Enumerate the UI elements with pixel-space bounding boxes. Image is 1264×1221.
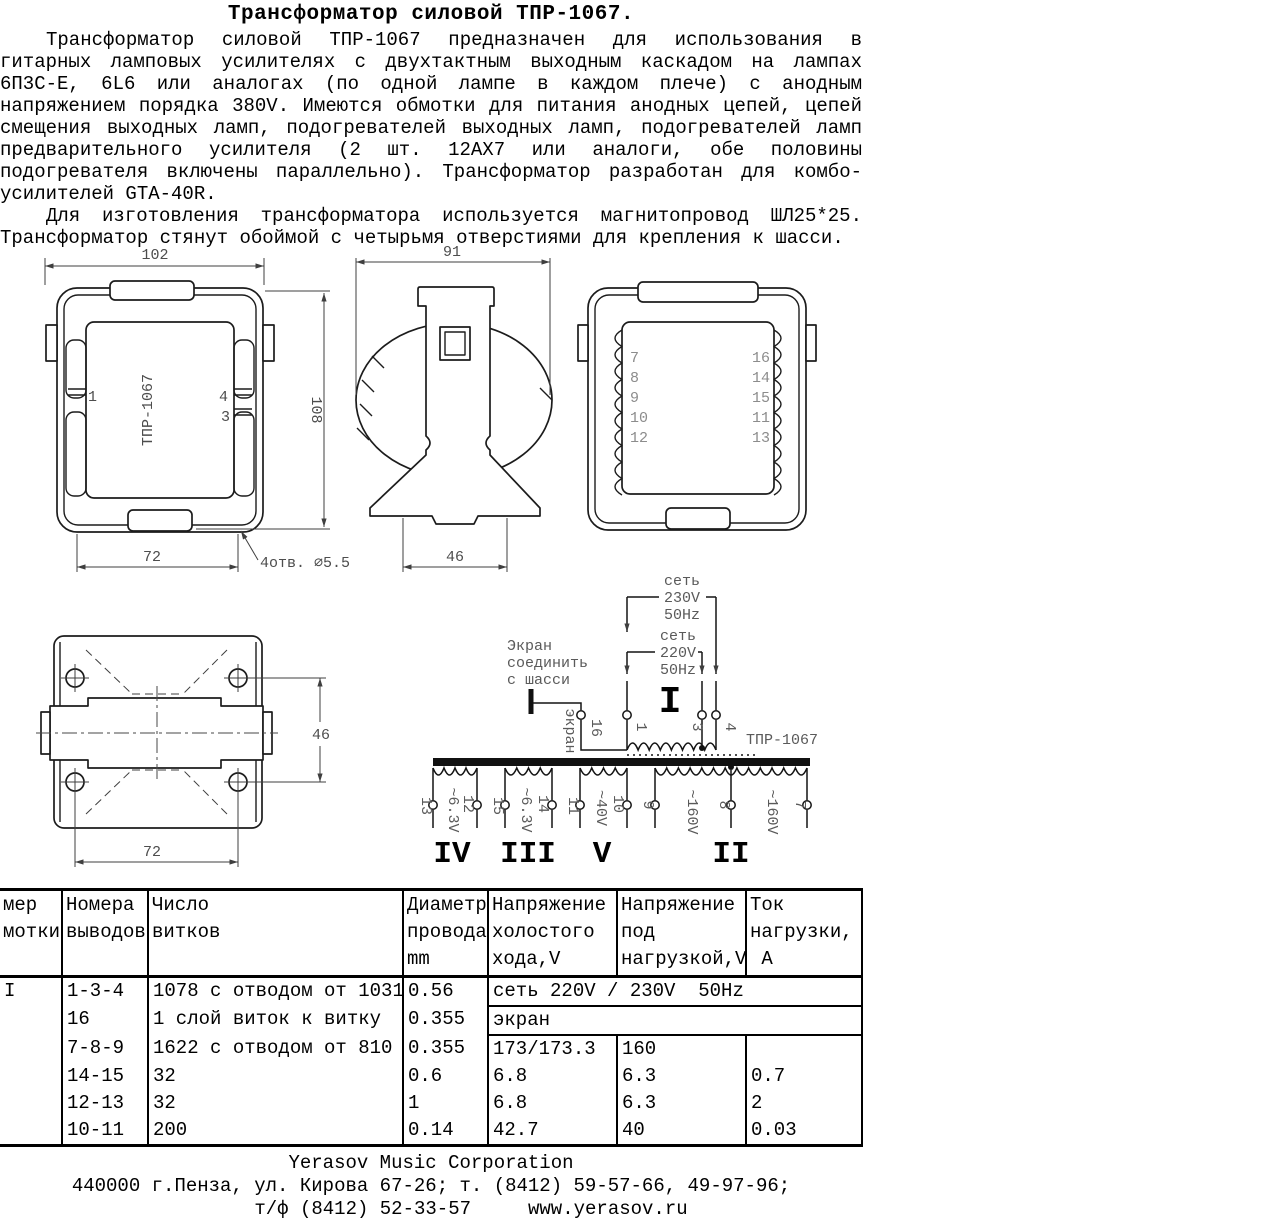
cell-load: 6.3 (617, 1063, 746, 1090)
th-pin-numbers: Номера выводов (62, 890, 148, 977)
svg-text:9: 9 (639, 800, 656, 809)
cell-screen-span: экран (488, 1006, 862, 1035)
th-winding-number: мер мотки (0, 890, 62, 977)
front-pin-1-label: 1 (88, 389, 97, 406)
rear-coil-window (622, 322, 774, 494)
cell-diameter: 0.56 (403, 977, 488, 1007)
screen-note: Экран (507, 638, 552, 655)
winding-II-numeral: II (712, 837, 749, 872)
cell-diameter: 0.6 (403, 1063, 488, 1090)
cell-pins: 12-13 (62, 1090, 148, 1117)
pin-1-terminal (623, 711, 631, 719)
rear-left-pin-strip (615, 330, 622, 495)
table-row: 10-11 200 0.14 42.7 40 0.03 (0, 1117, 862, 1146)
cell-pins: 14-15 (62, 1063, 148, 1090)
screen-wire-label: экран (561, 708, 578, 753)
pin-1-label: 1 (632, 722, 649, 731)
svg-text:7: 7 (791, 800, 808, 809)
table-row: I 1-3-4 1078 с отводом от 1031 0.56 сеть… (0, 977, 862, 1007)
cell-pins: 7-8-9 (62, 1035, 148, 1063)
top-dim-height: 46 (312, 727, 330, 744)
rear-right-pin-strip (774, 330, 781, 495)
table-row: 12-13 32 1 6.8 6.3 2 (0, 1090, 862, 1117)
top-view-drawing: 46 72 (36, 636, 330, 867)
svg-text:10: 10 (609, 795, 626, 813)
pin-3-label: 3 (688, 722, 705, 731)
cell-noload: 6.8 (488, 1090, 617, 1117)
cell-current: 0.03 (746, 1117, 862, 1146)
front-pin-4-label: 4 (219, 389, 228, 406)
cell-current: 2 (746, 1090, 862, 1117)
rear-pin-label: 16 (752, 350, 770, 367)
cell-winding-numeral: I (0, 977, 62, 1146)
core-bar (433, 758, 810, 766)
rear-top-tab (638, 282, 758, 302)
front-pin-3-label: 3 (221, 409, 230, 426)
winding-IV-numeral: IV (433, 837, 471, 872)
paragraph-line: 6П3С-Е, 6L6 или аналогах (по одной лампе… (0, 73, 862, 95)
cell-pins: 16 (62, 1006, 148, 1035)
winding-IV-coil (433, 768, 477, 775)
cell-diameter: 0.355 (403, 1006, 488, 1035)
svg-text:50Hz: 50Hz (660, 662, 696, 679)
primary-numeral: I (659, 681, 682, 724)
paragraph-line: Трансформатор силовой ТПР-1067 предназна… (0, 29, 862, 51)
front-coil-window (86, 322, 234, 498)
th-load-voltage: Напряжение под нагрузкой,V (617, 890, 746, 977)
front-bottom-tab (128, 510, 192, 531)
rear-bottom-tab (666, 508, 730, 529)
top-dim-width: 72 (143, 844, 161, 861)
table-row: 14-15 32 0.6 6.8 6.3 0.7 (0, 1063, 862, 1090)
datasheet-page: Трансформатор силовой ТПР-1067. Трансфор… (0, 0, 1264, 1221)
svg-text:15: 15 (489, 797, 506, 815)
cell-noload: 173/173.3 (488, 1035, 617, 1063)
intro-paragraph-1: Трансформатор силовой ТПР-1067 предназна… (0, 29, 862, 205)
footer-fax-website: т/ф (8412) 52-33-57 www.yerasov.ru (40, 1198, 902, 1221)
front-top-tab (110, 281, 194, 300)
paragraph-line: усилителей GTA-40R. (0, 183, 862, 205)
svg-text:соединить: соединить (507, 655, 588, 672)
winding-V-coil (580, 768, 627, 775)
svg-text:50Hz: 50Hz (664, 607, 700, 624)
cell-diameter: 0.355 (403, 1035, 488, 1063)
pin-4-terminal (712, 711, 720, 719)
side-view-drawing: 91 46 (356, 244, 552, 572)
schematic-model-label: ТПР-1067 (746, 732, 818, 749)
paragraph-line: Для изготовления трансформатора использу… (0, 205, 862, 227)
rear-view-drawing: 7 8 9 10 12 16 14 15 11 13 (578, 282, 816, 530)
cell-current: 0.7 (746, 1063, 862, 1090)
svg-text:13: 13 (417, 797, 434, 815)
cell-noload: 42.7 (488, 1117, 617, 1146)
winding-V-numeral: V (593, 837, 612, 872)
winding-III-numeral: III (500, 837, 556, 872)
front-dim-width: 102 (141, 247, 168, 264)
winding-II-voltage-right: ~160V (763, 789, 780, 834)
winding-schematic: сеть 230V 50Hz сеть 220V 50Hz Экран соед… (417, 573, 818, 872)
rear-pin-label: 8 (630, 370, 639, 387)
cell-turns: 1622 с отводом от 810 (148, 1035, 403, 1063)
company-footer: Yerasov Music Corporation 440000 г.Пенза… (0, 1152, 862, 1221)
front-dim-bottom: 72 (143, 549, 161, 566)
rear-pin-label: 7 (630, 350, 639, 367)
svg-text:8: 8 (715, 800, 732, 809)
th-turn-count: Число витков (148, 890, 403, 977)
cell-turns: 1 слой виток к витку (148, 1006, 403, 1035)
winding-spec-table: мер мотки Номера выводов Число витков Ди… (0, 888, 863, 1147)
mains-220-label: сеть (660, 628, 696, 645)
winding-III-voltage: ~6.3V (517, 787, 534, 832)
mains-230-label: сеть (664, 573, 700, 590)
cell-load: 40 (617, 1117, 746, 1146)
svg-text:с шасси: с шасси (507, 672, 570, 689)
svg-text:11: 11 (564, 797, 581, 815)
cell-turns: 32 (148, 1063, 403, 1090)
side-core-and-base (370, 287, 540, 524)
svg-text:14: 14 (534, 795, 551, 813)
rear-pin-label: 14 (752, 370, 770, 387)
rear-pin-label: 15 (752, 390, 770, 407)
cell-turns: 1078 с отводом от 1031 (148, 977, 403, 1007)
cell-diameter: 0.14 (403, 1117, 488, 1146)
rear-inner-frame (595, 295, 799, 523)
footer-address-phones: 440000 г.Пенза, ул. Кирова 67-26; т. (84… (0, 1175, 862, 1198)
rear-pin-label: 9 (630, 390, 639, 407)
table-row: 7-8-9 1622 с отводом от 810 0.355 173/17… (0, 1035, 862, 1063)
rear-pin-label: 13 (752, 430, 770, 447)
front-right-tab (263, 325, 274, 361)
cell-turns: 200 (148, 1117, 403, 1146)
pin-4-label: 4 (721, 722, 738, 731)
paragraph-line: гитарных ламповых усилителях с двухтактн… (0, 51, 862, 73)
front-holes-note: 4отв. ∅5.5 (260, 555, 350, 572)
cell-pins: 10-11 (62, 1117, 148, 1146)
front-model-label: ТПР-1067 (140, 374, 157, 446)
paragraph-line: смещения выходных ламп, подогревателей в… (0, 117, 862, 139)
th-wire-diameter: Диаметр провода mm (403, 890, 488, 977)
rear-pin-label: 10 (630, 410, 648, 427)
cell-mains-span: сеть 220V / 230V 50Hz (488, 977, 862, 1007)
cell-turns: 32 (148, 1090, 403, 1117)
cell-current (746, 1035, 862, 1063)
front-left-tab (46, 325, 57, 361)
paragraph-line: подогревателя включены параллельно). Тра… (0, 161, 862, 183)
winding-III-coil (505, 768, 552, 775)
paragraph-line: напряжением порядка 380V. Имеются обмотк… (0, 95, 862, 117)
th-load-current: Ток нагрузки, А (746, 890, 862, 977)
pin-16-label: 16 (587, 719, 604, 737)
table-row: 16 1 слой виток к витку 0.355 экран (0, 1006, 862, 1035)
svg-text:220V: 220V (660, 645, 696, 662)
cell-load: 160 (617, 1035, 746, 1063)
footer-company-name: Yerasov Music Corporation (0, 1152, 862, 1175)
rear-pin-label: 12 (630, 430, 648, 447)
winding-II-voltage-left: ~160V (683, 789, 700, 834)
pin-3-terminal (698, 711, 706, 719)
cell-pins: 1-3-4 (62, 977, 148, 1007)
side-dim-bottom: 46 (446, 549, 464, 566)
cell-noload: 6.8 (488, 1063, 617, 1090)
table-header-row: мер мотки Номера выводов Число витков Ди… (0, 890, 862, 977)
page-title: Трансформатор силовой ТПР-1067. (0, 3, 862, 26)
th-noload-voltage: Напряжение холостого хода,V (488, 890, 617, 977)
front-view-drawing: ТПР-1067 1 4 3 102 108 72 4отв. ∅5.5 (45, 247, 350, 572)
svg-text:230V: 230V (664, 590, 700, 607)
front-dim-height: 108 (307, 396, 324, 423)
winding-IV-voltage: ~6.3V (444, 787, 461, 832)
paragraph-line: предварительного усилителя (2 шт. 12AX7 … (0, 139, 862, 161)
intro-text: Трансформатор силовой ТПР-1067 предназна… (0, 29, 862, 249)
side-dim-width: 91 (443, 244, 461, 261)
cell-load: 6.3 (617, 1090, 746, 1117)
cell-diameter: 1 (403, 1090, 488, 1117)
technical-drawings: ТПР-1067 1 4 3 102 108 72 4отв. ∅5.5 (0, 240, 862, 888)
winding-V-voltage: ~40V (592, 790, 609, 826)
rear-pin-label: 11 (752, 410, 770, 427)
